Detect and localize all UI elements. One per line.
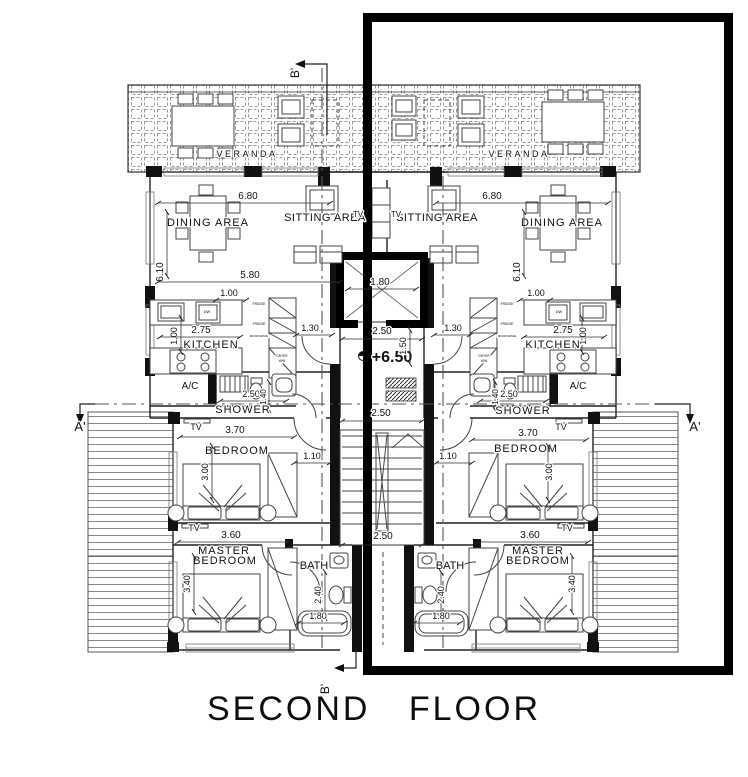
label-tv-sitting-right: TV [391,210,402,219]
toilet-left [329,586,343,604]
label-dim-130-left: 1.30 [301,323,319,333]
tall-cabinet-right [470,298,497,378]
label-tv-master-right: TV [561,523,573,533]
label-dim-180-bath-left: 1.80 [309,611,327,621]
label-dim-370-right: 3.70 [518,428,538,439]
label-dim-140-left: 1.40 [259,389,268,405]
label-dim-130-right: 1.30 [444,323,462,333]
label-dim-140-right: 1.40 [491,389,500,405]
label-dim-300-left: 3.00 [200,463,210,481]
label-appl-dw-r: DW [556,309,563,314]
label-appl-dryer-l1: DRYER [276,354,288,358]
label-dim-100-right-h: 1.00 [527,288,545,298]
tv-wall-unit [372,188,390,238]
label-appl-dryer-r2: W/M [481,359,488,363]
label-room-master-left-2: BEDROOM [193,555,257,567]
balcony-left [88,412,173,652]
label-dim-240-right: 2.40 [436,586,446,604]
label-dim-250-core-top: 2.50 [372,326,392,337]
label-dim-300-right: 3.00 [544,463,554,481]
label-room-bath-right: BATH [436,560,465,572]
label-veranda-right: VERANDA [488,149,549,159]
label-dim-580: 5.80 [240,270,260,281]
label-appl-fridge-l1: FRIDGE [253,302,267,306]
label-tv-bed-left: TV [190,422,202,432]
floor-plan-canvas: VERANDAVERANDA6.806.80DINING AREASITTING… [0,0,748,777]
label-dim-110-right: 1.10 [439,451,457,461]
label-room-bedroom-left: BEDROOM [205,445,269,457]
stove-right [550,350,596,373]
kitchen-right [470,298,616,378]
label-dim-680-left: 6.80 [238,191,258,202]
mechanical-units [386,378,416,401]
label-dim-680-right: 6.80 [482,191,502,202]
outdoor-table-left [172,106,234,146]
balcony-right [593,412,678,652]
label-appl-dw-l: DW [204,309,211,314]
label-marker-b-top: B' [288,68,302,78]
label-appl-fridge-l2: FRIDGE [253,322,267,326]
label-tv-bed-right: TV [555,422,567,432]
label-room-dining-right: DINING AREA [521,217,603,229]
label-dim-150-core: 1.50 [398,337,408,355]
label-dim-240-left: 2.40 [313,586,323,604]
label-tv-master-left: TV [188,523,200,533]
label-dim-360-left: 3.60 [221,530,241,541]
label-dim-180-elevator: 1.80 [370,277,390,288]
label-appl-micro-r: MICROWAVE [498,334,517,338]
label-dim-610-right: 6.10 [512,262,523,282]
label-dim-250-core-mid: 2.50 [371,408,391,419]
elevator-shaft [340,256,424,328]
tall-cabinet-left [269,298,296,378]
stove-left [170,350,216,373]
label-marker-a-right: A' [689,419,700,434]
label-dim-340-right: 3.40 [567,575,577,593]
label-room-dining-left: DINING AREA [167,217,249,229]
label-veranda-left: VERANDA [216,149,277,159]
label-marker-a-left: A' [74,419,85,434]
label-dim-110-left: 1.10 [303,451,321,461]
label-dim-180-bath-right: 1.80 [432,611,450,621]
toilet-right [423,586,437,604]
label-dim-100-left-v: 1.00 [169,327,179,345]
label-dim-100-left-h: 1.00 [220,288,238,298]
label-dim-275-left: 2.75 [191,325,211,336]
label-dim-340-left: 3.40 [182,575,192,593]
label-dim-250-shower-left: 2.50 [242,389,260,399]
label-room-kitchen-left: KITCHEN [183,339,238,351]
floor-title: SECOND FLOOR [0,690,748,729]
label-room-shower-left: SHOWER [215,404,271,416]
label-appl-dryer-l2: W/M [279,359,286,363]
label-dim-370-left: 3.70 [225,425,245,436]
label-room-sitting-right: SITTING AREA [396,212,478,224]
label-dim-250-stairs: 2.50 [373,531,393,542]
label-appl-dryer-r1: DRYER [478,354,490,358]
label-room-ac-right: A/C [570,381,587,392]
label-dim-360-right: 3.60 [520,530,540,541]
label-dim-610-left: 6.10 [155,262,166,282]
label-dim-250-shower-right: 2.50 [500,389,518,399]
label-tv-sitting-left: TV [353,210,364,219]
label-room-shower-right: SHOWER [495,405,551,417]
label-appl-fridge-r2: FRIDGE [501,322,515,326]
label-room-master-right-2: BEDROOM [506,555,570,567]
label-appl-micro-l: MICROWAVE [250,334,269,338]
label-room-bath-left: BATH [300,560,329,572]
label-room-ac-left: A/C [182,381,199,392]
outdoor-table-right [542,102,604,142]
label-dim-275-right: 2.75 [553,325,573,336]
label-appl-fridge-r1: FRIDGE [501,302,515,306]
label-room-kitchen-right: KITCHEN [525,339,580,351]
